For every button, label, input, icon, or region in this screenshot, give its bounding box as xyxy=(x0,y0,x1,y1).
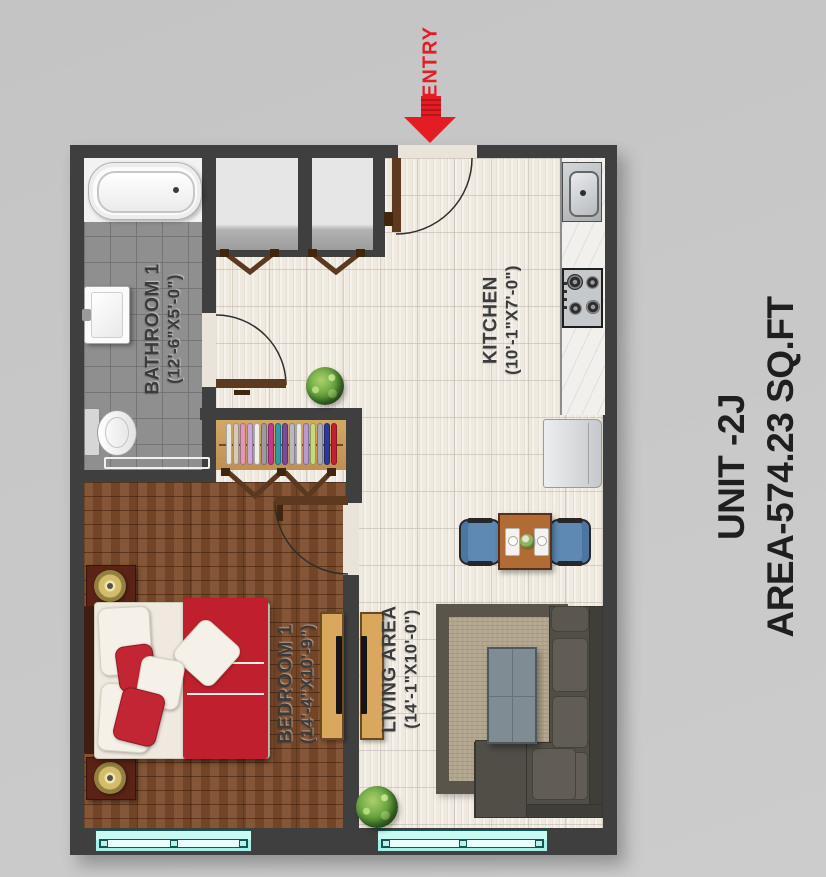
garment xyxy=(296,423,302,465)
garment xyxy=(261,423,267,465)
kitchen-dimensions: (10'-1"X7'-0") xyxy=(502,265,522,375)
entry-arrow-icon xyxy=(421,96,441,118)
bathroom-label: BATHROOM 1 (12'-6"X5'-0") xyxy=(142,263,183,394)
burner-icon xyxy=(569,302,582,315)
closet-1-floor xyxy=(216,158,298,250)
garment xyxy=(331,423,337,465)
stove xyxy=(562,268,603,328)
table-lamp xyxy=(94,762,126,794)
garment xyxy=(303,423,309,465)
plant-living xyxy=(356,786,398,828)
bathtub xyxy=(88,162,202,220)
kitchen-sink-drain xyxy=(580,190,586,196)
sofa-cushion xyxy=(552,696,588,748)
wall-top-right xyxy=(477,145,617,158)
wall-top-left xyxy=(70,145,398,158)
sofa-ottoman xyxy=(475,740,527,818)
garment xyxy=(226,423,232,465)
unit-number: UNIT -2J xyxy=(708,296,757,637)
table-centerpiece xyxy=(520,534,534,548)
garment xyxy=(317,423,323,465)
wall-wardrobe-top xyxy=(200,408,362,420)
refrigerator xyxy=(543,419,602,488)
wall-wardrobe-right xyxy=(346,408,362,503)
wall-left xyxy=(70,145,84,855)
sofa-cushion xyxy=(552,638,588,692)
wall-closet-divider xyxy=(298,158,312,257)
garment xyxy=(254,423,260,465)
garment xyxy=(310,423,316,465)
bathroom-sink-basin xyxy=(91,292,123,338)
living-area-label: LIVING AREA (14'-1"X10'-0") xyxy=(379,605,420,732)
bathroom-sink xyxy=(84,286,130,344)
sofa-backrest-right xyxy=(589,606,603,818)
tv-bedroom xyxy=(336,636,342,714)
bathroom-door-threshold xyxy=(202,313,216,387)
faucet-icon xyxy=(82,309,91,321)
living-area-name: LIVING AREA xyxy=(379,605,401,732)
wall-right xyxy=(603,145,617,855)
wall-bedroom-top xyxy=(70,470,216,482)
bathtub-drain xyxy=(173,187,179,193)
entry-threshold xyxy=(398,145,477,158)
toilet xyxy=(97,410,137,456)
sofa-cushion xyxy=(532,748,576,800)
unit-area-label: UNIT -2J AREA-574.23 SQ.FT xyxy=(708,296,806,637)
living-area-dimensions: (14'-1"X10'-0") xyxy=(401,605,421,732)
wall-bedroom-living-divider xyxy=(343,575,359,828)
bathroom-name: BATHROOM 1 xyxy=(142,263,164,394)
bath-mat xyxy=(104,457,210,469)
window-frame xyxy=(99,839,248,848)
garment xyxy=(240,423,246,465)
bedroom-dimensions: (14'-4"X10'-9") xyxy=(297,624,317,744)
tv-living xyxy=(361,636,367,714)
window-frame xyxy=(381,839,544,848)
entry-label: ENTRY xyxy=(420,26,443,98)
plant-hallway xyxy=(306,367,344,405)
floor-plan-canvas: BATHROOM 1 (12'-6"X5'-0") KITCHEN (10'-1… xyxy=(0,0,826,877)
table-lamp xyxy=(94,570,126,602)
stove-knobs xyxy=(564,282,567,285)
dining-chair-right xyxy=(549,519,591,565)
kitchen-sink xyxy=(562,162,602,222)
bathtub-basin xyxy=(97,171,195,213)
wall-bathroom-right-upper xyxy=(202,158,216,313)
wardrobe-clothes xyxy=(216,420,346,470)
dining-chair-left xyxy=(459,519,501,565)
garment xyxy=(233,423,239,465)
wall-closets-bottom xyxy=(216,250,385,257)
place-setting xyxy=(534,528,549,556)
coffee-table xyxy=(487,647,537,744)
garment xyxy=(282,423,288,465)
garment xyxy=(324,423,330,465)
burner-icon xyxy=(586,300,600,314)
burner-icon xyxy=(567,274,583,290)
garment xyxy=(275,423,281,465)
bedroom-label: BEDROOM 1 (14'-4"X10'-9") xyxy=(275,624,316,744)
garment xyxy=(247,423,253,465)
window-living xyxy=(377,830,548,852)
toilet-seat xyxy=(105,417,129,448)
window-bedroom xyxy=(95,830,252,852)
bathroom-dimensions: (12'-6"X5'-0") xyxy=(164,263,184,394)
kitchen-label: KITCHEN (10'-1"X7'-0") xyxy=(480,265,521,375)
garment xyxy=(289,423,295,465)
wall-closet2-right xyxy=(373,145,385,257)
bedroom-door-threshold xyxy=(343,503,359,575)
kitchen-name: KITCHEN xyxy=(480,265,502,375)
unit-area: AREA-574.23 SQ.FT xyxy=(757,296,806,637)
garment xyxy=(268,423,274,465)
bedroom-name: BEDROOM 1 xyxy=(275,624,297,744)
closet-2-floor xyxy=(312,158,373,250)
sofa-armrest xyxy=(551,606,589,632)
entry-arrow-head-icon xyxy=(404,117,456,143)
place-setting xyxy=(505,528,520,556)
burner-icon xyxy=(586,276,599,289)
